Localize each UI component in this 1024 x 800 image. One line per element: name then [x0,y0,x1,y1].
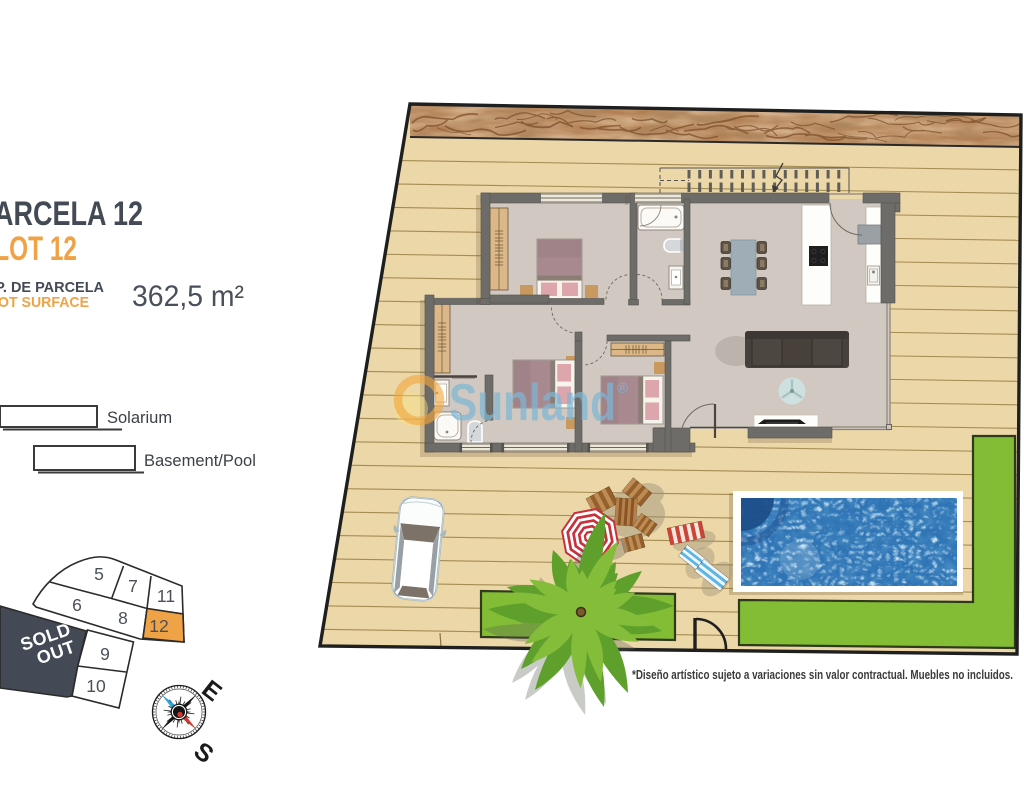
svg-text:6: 6 [72,595,82,615]
svg-text:PLOT 12: PLOT 12 [0,230,77,268]
svg-text:362,5 m²: 362,5 m² [132,280,244,313]
svg-text:5: 5 [94,564,104,584]
svg-text:S: S [188,737,218,769]
svg-text:10: 10 [86,676,106,696]
svg-text:7: 7 [128,576,138,596]
svg-text:®: ® [617,380,628,397]
svg-text:Solarium: Solarium [107,409,172,427]
svg-text:8: 8 [118,608,128,628]
svg-text:12: 12 [149,616,168,636]
svg-text:9: 9 [100,644,110,664]
svg-text:*Diseño artístico sujeto a var: *Diseño artístico sujeto a variaciones s… [632,668,1013,682]
svg-text:PARCELA 12: PARCELA 12 [0,195,143,233]
svg-text:PLOT SURFACE: PLOT SURFACE [0,294,89,311]
svg-text:11: 11 [157,586,175,606]
svg-text:Sunland: Sunland [449,374,616,432]
svg-text:Basement/Pool: Basement/Pool [144,452,256,470]
